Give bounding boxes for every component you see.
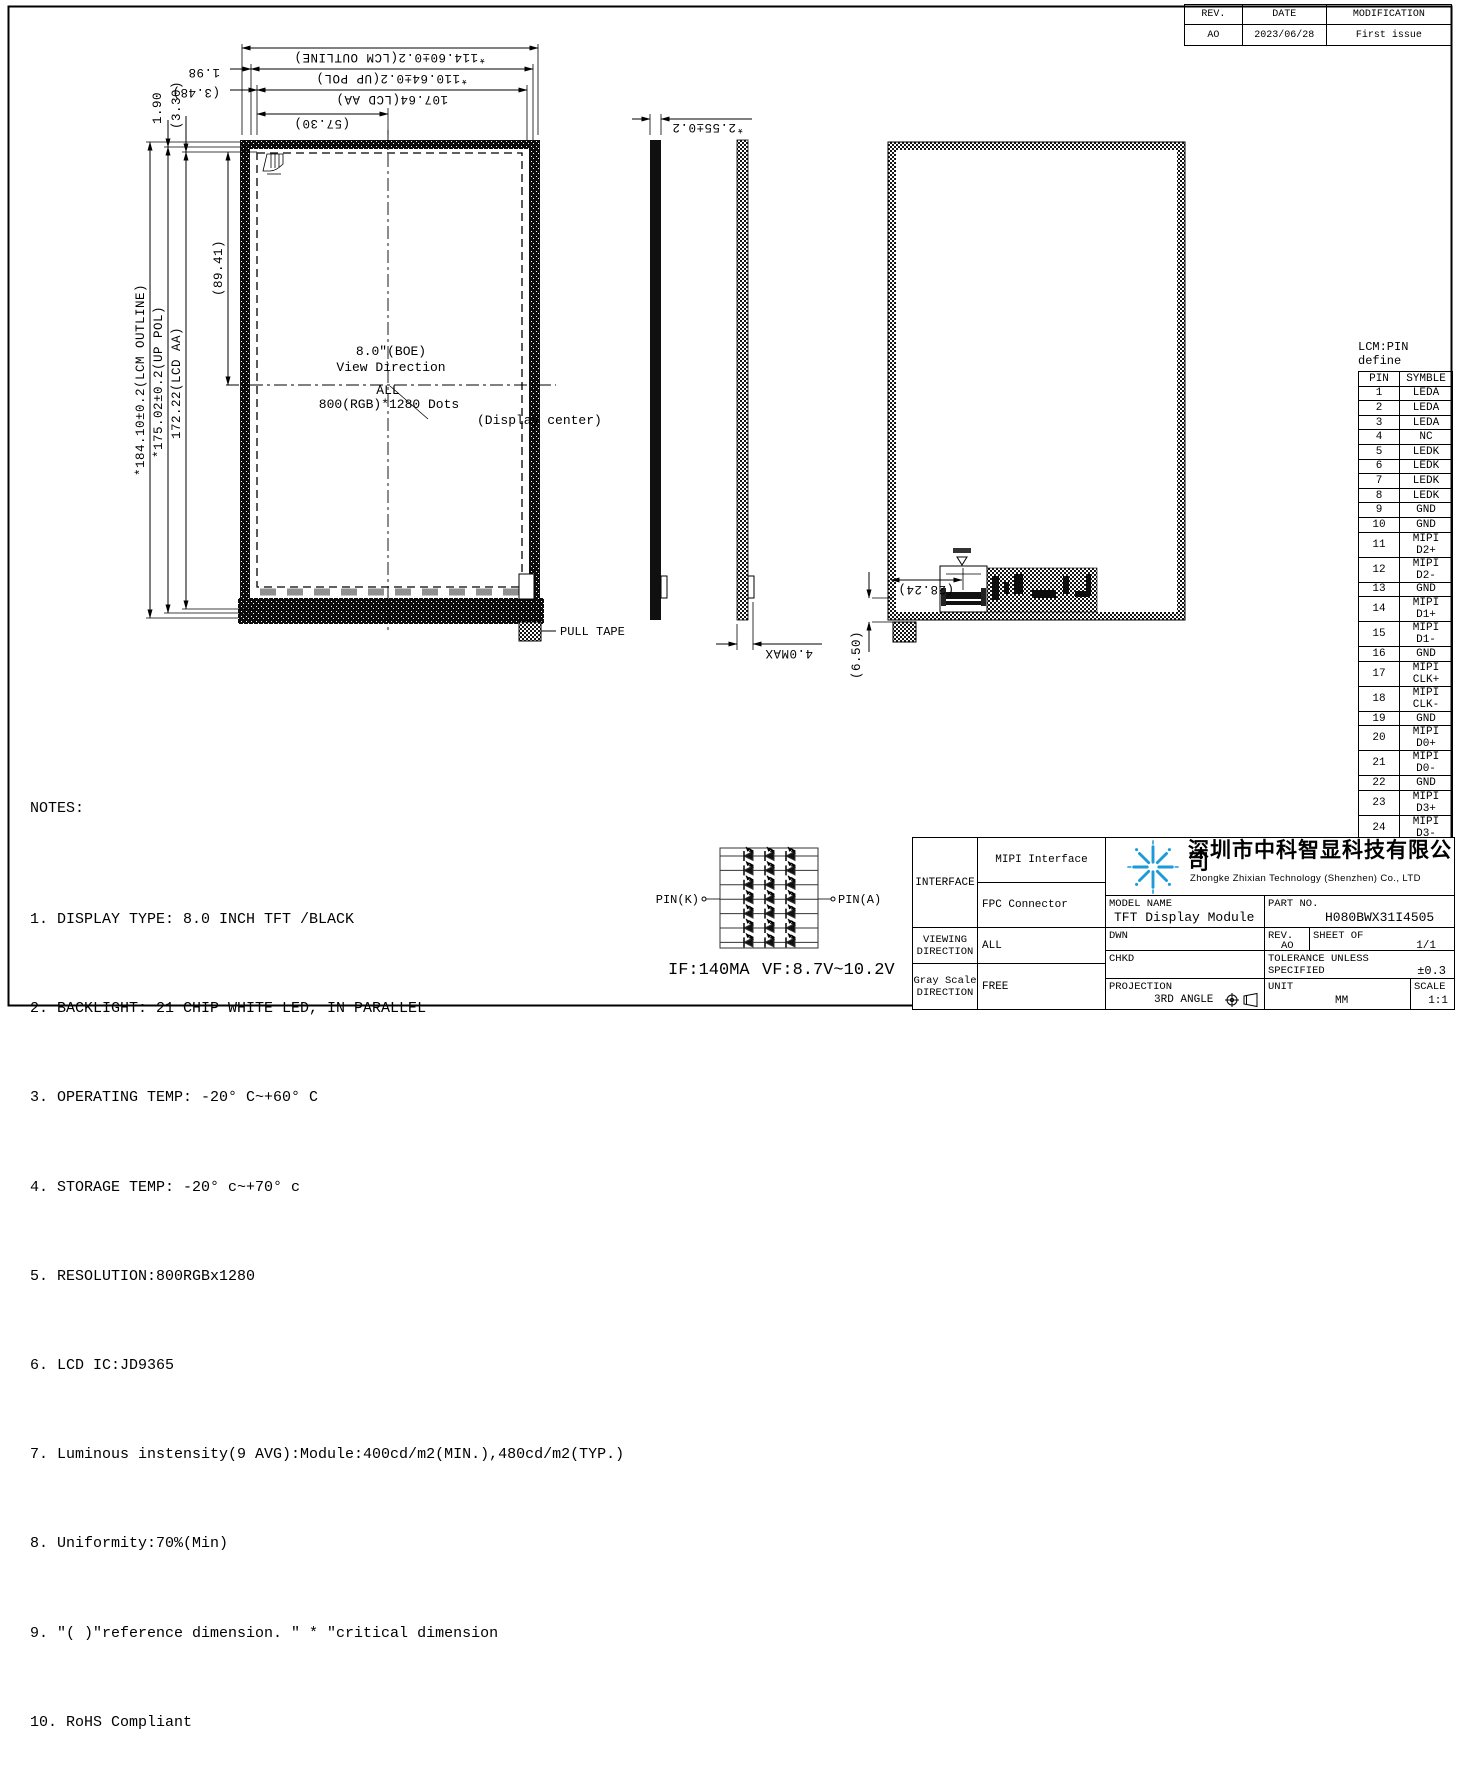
- gray-scale-label-cell: Gray Scale DIRECTION: [912, 963, 978, 1010]
- led-icon: [786, 876, 796, 890]
- note-item: 8. Uniformity:70%(Min): [30, 1533, 680, 1555]
- led-icon: [786, 861, 796, 875]
- viewing-direction-value: ALL: [982, 940, 1002, 952]
- pin-number: 4: [1359, 430, 1400, 445]
- chkd-cell: CHKD: [1105, 950, 1265, 979]
- led-voltage-label: VF:8.7V~10.2V: [762, 961, 895, 980]
- pin-row: 18 MIPI CLK-: [1359, 686, 1453, 711]
- company-cell: 深圳市中科智显科技有限公司 Zhongke Zhixian Technology…: [1105, 837, 1455, 896]
- pin-symbol: NC: [1400, 430, 1453, 445]
- modification-header: MODIFICATION: [1326, 5, 1451, 25]
- rev-header: REV.: [1185, 5, 1243, 25]
- display-center-label: (Display center): [477, 413, 602, 428]
- pin-symbol: LEDK: [1400, 459, 1453, 474]
- modification-value: First issue: [1326, 25, 1451, 46]
- pin-number: 9: [1359, 503, 1400, 518]
- scale-cell: SCALE 1:1: [1410, 978, 1455, 1010]
- viewing-direction-label-cell: VIEWING DIRECTION: [912, 927, 978, 964]
- dim-pol-width: *110.64±0.2(UP POL): [316, 71, 468, 85]
- pin-symbol: MIPI D2+: [1400, 532, 1453, 557]
- dim-aa-height: 172.22(LCD AA): [170, 327, 184, 439]
- pin-symbol: LEDA: [1400, 386, 1453, 401]
- pin-row: 4 NC: [1359, 430, 1453, 445]
- dim-half-height: (89.41): [212, 240, 226, 296]
- pin-row: 22 GND: [1359, 776, 1453, 791]
- pin-row: 16 GND: [1359, 647, 1453, 662]
- gray-scale-value-cell: FREE: [977, 963, 1106, 1010]
- led-icon: [786, 847, 796, 861]
- pin-symbol: MIPI D3+: [1400, 790, 1453, 815]
- led-icon: [786, 933, 796, 947]
- led-icon: [786, 919, 796, 933]
- led-icon: [765, 876, 775, 890]
- fpc-connector-value: FPC Connector: [982, 899, 1068, 911]
- revision-row: AO 2023/06/28 First issue: [1185, 25, 1452, 46]
- pin-symbol: MIPI D0+: [1400, 726, 1453, 751]
- pull-tape: PULL TAPE: [519, 622, 625, 641]
- notes-section: NOTES: 1. DISPLAY TYPE: 8.0 INCH TFT /BL…: [30, 753, 680, 1779]
- note-item: 9. ″( )″reference dimension. ″ * ″critic…: [30, 1623, 680, 1645]
- pin-row: 10 GND: [1359, 517, 1453, 532]
- bezel-notch: [519, 574, 534, 599]
- panel-center-labels: 8.0″(BOE) View Direction ALL 800(RGB)*12…: [319, 344, 602, 428]
- gray-scale-label: Gray Scale DIRECTION: [913, 975, 977, 999]
- pin-row: 19 GND: [1359, 711, 1453, 726]
- side-view-left: *2.55±0.2: [632, 114, 752, 620]
- pin-symbol: MIPI D1+: [1400, 597, 1453, 622]
- pin-symbol: GND: [1400, 711, 1453, 726]
- model-name-cell: MODEL NAME TFT Display Module: [1105, 895, 1265, 928]
- company-logo: [1124, 839, 1182, 895]
- model-name-label: MODEL NAME: [1109, 898, 1172, 910]
- led-icon: [744, 876, 754, 890]
- pull-tape-label: PULL TAPE: [560, 625, 625, 639]
- dim-outline-height: *184.10±0.2(LCM OUTLINE): [134, 284, 148, 476]
- dim-half-width: (57.30): [294, 116, 350, 130]
- note-item: 3. OPERATING TEMP: -20° C~+60° C: [30, 1087, 680, 1109]
- pin-symbol: LEDK: [1400, 444, 1453, 459]
- tolerance-label: TOLERANCE UNLESS SPECIFIED: [1268, 953, 1398, 977]
- pin-symbol: GND: [1400, 776, 1453, 791]
- pin-number: 18: [1359, 686, 1400, 711]
- view-all-label: ALL: [376, 383, 399, 398]
- pin-k-terminal: [702, 897, 706, 901]
- led-icon: [786, 905, 796, 919]
- pin-number: 13: [1359, 582, 1400, 597]
- symbol-col-header: SYMBLE: [1400, 372, 1453, 387]
- pin-number: 1: [1359, 386, 1400, 401]
- note-item: 5. RESOLUTION:800RGBx1280: [30, 1266, 680, 1288]
- note-item: 4. STORAGE TEMP: -20° c~+70° c: [30, 1177, 680, 1199]
- front-bottom-bezel: [238, 598, 544, 624]
- dim-outline-width: *114.60±0.2(LCM OUTLINE): [294, 50, 486, 64]
- dim-max-thickness: 4.0MAX: [765, 646, 813, 660]
- side-view-right: 4.0MAX: [716, 140, 822, 660]
- dim-1-98: 1.98: [188, 65, 220, 79]
- pin-number: 16: [1359, 647, 1400, 662]
- pin-number: 2: [1359, 401, 1400, 416]
- dim-1-90: 1.90: [151, 92, 165, 124]
- back-pull-tape: [893, 622, 916, 642]
- panel-size-label: 8.0″(BOE): [356, 344, 426, 359]
- note-item: 7. Luminous instensity(9 AVG):Module:400…: [30, 1444, 680, 1466]
- interface-fpc-cell: FPC Connector: [977, 882, 1106, 928]
- sheet-of-label: SHEET OF: [1313, 930, 1363, 942]
- pin-symbol: MIPI CLK-: [1400, 686, 1453, 711]
- pin-symbol: MIPI CLK+: [1400, 661, 1453, 686]
- pin-number: 6: [1359, 459, 1400, 474]
- pin-row: 17 MIPI CLK+: [1359, 661, 1453, 686]
- led-icon: [744, 905, 754, 919]
- mipi-interface-value: MIPI Interface: [995, 854, 1087, 866]
- pin-symbol: GND: [1400, 517, 1453, 532]
- led-current-label: IF:140MA: [668, 961, 750, 980]
- model-name-value: TFT Display Module: [1114, 912, 1254, 924]
- connector-microtext: [953, 548, 971, 553]
- date-header: DATE: [1242, 5, 1326, 25]
- dim-3-30: (3.30): [170, 81, 184, 129]
- dimensions-left: *184.10±0.2(LCM OUTLINE) *175.02±0.2(UP …: [134, 142, 257, 618]
- pin-number: 3: [1359, 415, 1400, 430]
- pin-number: 15: [1359, 622, 1400, 647]
- pin-number: 17: [1359, 661, 1400, 686]
- interface-label: INTERFACE: [915, 877, 974, 889]
- notes-title: NOTES:: [30, 798, 680, 820]
- pin-row: 11 MIPI D2+: [1359, 532, 1453, 557]
- led-icon: [744, 933, 754, 947]
- pin-number: 23: [1359, 790, 1400, 815]
- pin-number: 21: [1359, 751, 1400, 776]
- pin-row: 5 LEDK: [1359, 444, 1453, 459]
- pin-symbol: MIPI D1-: [1400, 622, 1453, 647]
- pin-row: 14 MIPI D1+: [1359, 597, 1453, 622]
- pin-symbol: MIPI D2-: [1400, 557, 1453, 582]
- led-icon: [744, 847, 754, 861]
- unit-value: MM: [1335, 995, 1348, 1007]
- date-value: 2023/06/28: [1242, 25, 1326, 46]
- led-icon: [765, 890, 775, 904]
- company-name-en: Zhongke Zhixian Technology (Shenzhen) Co…: [1190, 873, 1421, 885]
- pin-row: 2 LEDA: [1359, 401, 1453, 416]
- led-icon: [744, 861, 754, 875]
- led-icon: [765, 933, 775, 947]
- scale-value: 1:1: [1428, 995, 1448, 1007]
- pin-symbol: LEDK: [1400, 474, 1453, 489]
- unit-label: UNIT: [1268, 981, 1293, 993]
- pin-row: 3 LEDA: [1359, 415, 1453, 430]
- led-circuit: PIN(K) PIN(A) IF:140MA VF:8.7V~10.2V: [656, 847, 896, 980]
- part-no-label: PART NO.: [1268, 898, 1318, 910]
- pin-number: 14: [1359, 597, 1400, 622]
- pin-row: 7 LEDK: [1359, 474, 1453, 489]
- company-name-cn: 深圳市中科智显科技有限公司: [1188, 845, 1454, 869]
- dim-connector-width: (28.24): [898, 582, 954, 596]
- pin-number: 20: [1359, 726, 1400, 751]
- dim-thickness: *2.55±0.2: [672, 120, 744, 134]
- interface-mipi-cell: MIPI Interface: [977, 837, 1106, 883]
- pin-row: 8 LEDK: [1359, 488, 1453, 503]
- pin-row: 1 LEDA: [1359, 386, 1453, 401]
- pin-row: 23 MIPI D3+: [1359, 790, 1453, 815]
- pin-a-label: PIN(A): [838, 893, 881, 907]
- gray-scale-value: FREE: [982, 981, 1008, 993]
- revision-table: REV. DATE MODIFICATION AO 2023/06/28 Fir…: [1184, 4, 1452, 46]
- part-no-cell: PART NO. H080BWX31I4505: [1264, 895, 1455, 928]
- sheet-cell: SHEET OF 1/1: [1309, 927, 1455, 951]
- note-item: 10. RoHS Compliant: [30, 1712, 680, 1734]
- pin-number: 11: [1359, 532, 1400, 557]
- pin-number: 10: [1359, 517, 1400, 532]
- pin-col-header: PIN: [1359, 372, 1400, 387]
- resolution-label: 800(RGB)*1280 Dots: [319, 397, 459, 412]
- chkd-label: CHKD: [1109, 953, 1134, 965]
- note-item: 6. LCD IC:JD9365: [30, 1355, 680, 1377]
- led-icon: [765, 905, 775, 919]
- pin-symbol: GND: [1400, 647, 1453, 662]
- dwn-label: DWN: [1109, 930, 1128, 942]
- projection-cell: PROJECTION 3RD ANGLE: [1105, 978, 1265, 1010]
- scale-label: SCALE: [1414, 981, 1446, 993]
- led-icon: [786, 890, 796, 904]
- rev-value: AO: [1185, 25, 1243, 46]
- dim-pol-height: *175.02±0.2(UP POL): [152, 306, 166, 458]
- led-icon: [765, 919, 775, 933]
- pin-number: 7: [1359, 474, 1400, 489]
- pin-number: 22: [1359, 776, 1400, 791]
- projection-value: 3RD ANGLE: [1154, 994, 1213, 1006]
- view-direction-label: View Direction: [336, 360, 445, 375]
- interface-label-cell: INTERFACE: [912, 837, 978, 928]
- led-icon: [765, 847, 775, 861]
- pin-symbol: LEDA: [1400, 401, 1453, 416]
- note-item: 1. DISPLAY TYPE: 8.0 INCH TFT /BLACK: [30, 909, 680, 931]
- led-icon: [744, 919, 754, 933]
- pin-table-title: LCM:PIN define: [1358, 340, 1458, 368]
- pin-row: 9 GND: [1359, 503, 1453, 518]
- pin-row: 21 MIPI D0-: [1359, 751, 1453, 776]
- projection-label: PROJECTION: [1109, 981, 1172, 993]
- pin-row: 6 LEDK: [1359, 459, 1453, 474]
- pin-number: 12: [1359, 557, 1400, 582]
- dim-aa-width: 107.64(LCD AA): [336, 92, 448, 106]
- viewing-direction-value-cell: ALL: [977, 927, 1106, 964]
- front-view: 8.0″(BOE) View Direction ALL 800(RGB)*12…: [226, 130, 625, 641]
- pin-symbol: GND: [1400, 582, 1453, 597]
- pin-a-terminal: [831, 897, 835, 901]
- pin-row: 15 MIPI D1-: [1359, 622, 1453, 647]
- pin-symbol: LEDK: [1400, 488, 1453, 503]
- dim-tail-height: (6.50): [850, 631, 864, 679]
- led-icon: [765, 861, 775, 875]
- dwn-cell: DWN: [1105, 927, 1265, 951]
- unit-cell: UNIT MM: [1264, 978, 1411, 1010]
- led-icon: [744, 890, 754, 904]
- back-view: (28.24) (6.50): [850, 142, 1185, 679]
- pin-row: 20 MIPI D0+: [1359, 726, 1453, 751]
- pin-symbol: GND: [1400, 503, 1453, 518]
- tolerance-cell: TOLERANCE UNLESS SPECIFIED ±0.3: [1264, 950, 1455, 979]
- tolerance-value: ±0.3: [1417, 965, 1446, 977]
- pin-number: 8: [1359, 488, 1400, 503]
- pin-number: 19: [1359, 711, 1400, 726]
- dimensions-top: *114.60±0.2(LCM OUTLINE) *110.64±0.2(UP …: [151, 44, 538, 152]
- pin-row: 13 GND: [1359, 582, 1453, 597]
- pin-symbol: LEDA: [1400, 415, 1453, 430]
- rev-cell: REV. AO: [1264, 927, 1310, 951]
- viewing-direction-label: VIEWING DIRECTION: [913, 934, 977, 958]
- part-no-value: H080BWX31I4505: [1325, 912, 1434, 924]
- orientation-mark-icon: [263, 154, 283, 174]
- third-angle-projection-icon: [1224, 992, 1260, 1008]
- note-item: 2. BACKLIGHT: 21 CHIP WHITE LED, IN PARA…: [30, 998, 680, 1020]
- pin-row: 12 MIPI D2-: [1359, 557, 1453, 582]
- pin-number: 5: [1359, 444, 1400, 459]
- pin-symbol: MIPI D0-: [1400, 751, 1453, 776]
